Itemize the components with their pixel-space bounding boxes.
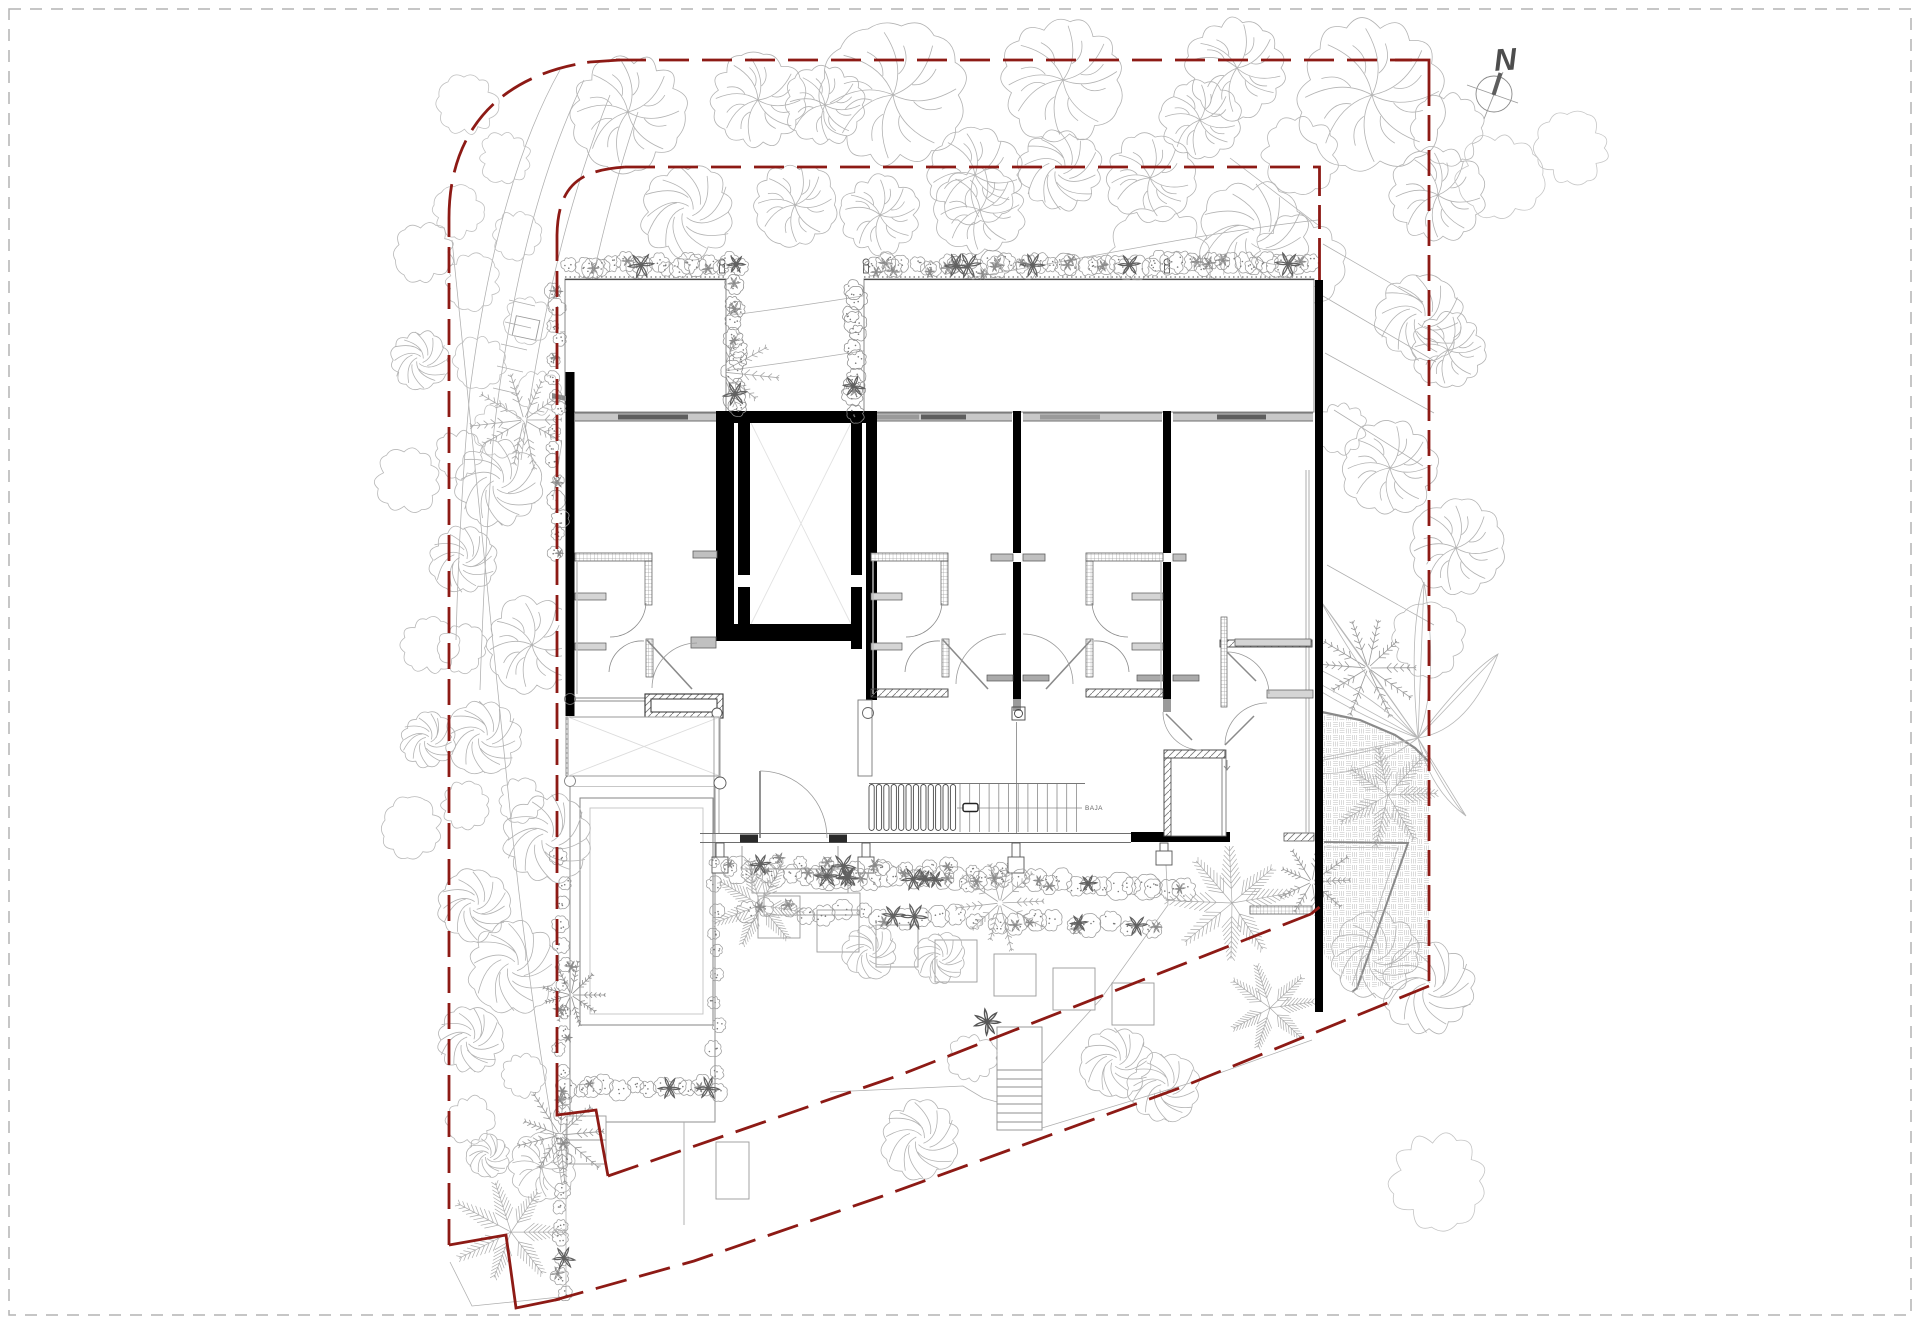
svg-text:BAJA: BAJA bbox=[1085, 805, 1103, 812]
svg-text:N: N bbox=[1493, 41, 1518, 78]
